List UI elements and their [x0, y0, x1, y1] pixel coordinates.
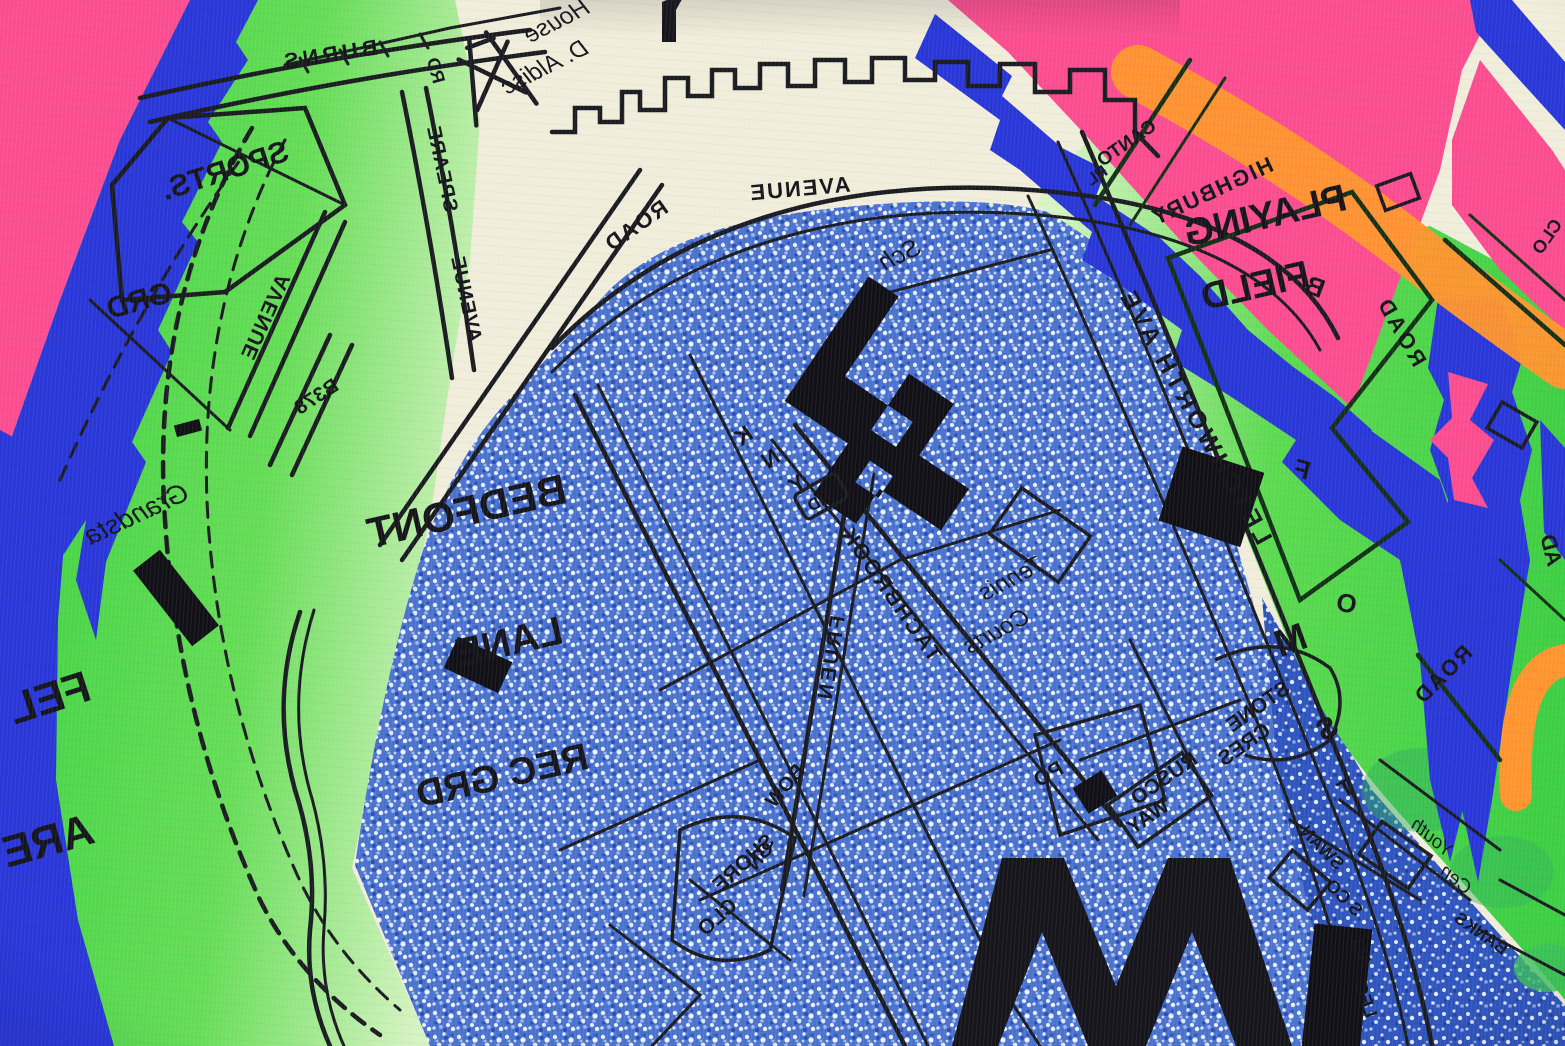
- vignette-overlay: [0, 0, 1565, 1046]
- map-print-canvas: BURNS SPORTS. GRD RD SPEARE AVENUE AVENU…: [0, 0, 1565, 1046]
- fabric-map-photo: BURNS SPORTS. GRD RD SPEARE AVENUE AVENU…: [0, 0, 1565, 1046]
